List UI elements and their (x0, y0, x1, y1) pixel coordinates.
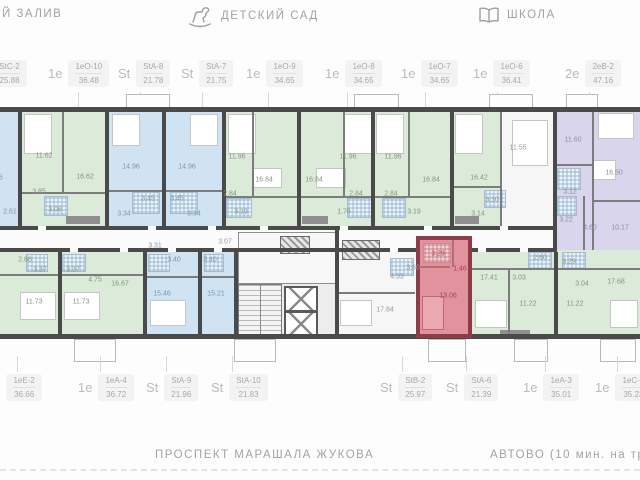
room-area: 15.66 (0, 175, 3, 182)
partition (420, 266, 450, 268)
unit-label-StA-9[interactable]: St StA-921.96 (146, 374, 198, 401)
balcony (600, 339, 636, 362)
room-area: 17.41 (480, 275, 498, 282)
wall (0, 334, 640, 339)
door-gap (260, 226, 268, 230)
gulf-label: Й ЗАЛИВ (2, 8, 62, 20)
partition (252, 110, 254, 196)
room-area: 3.14 (471, 211, 485, 218)
furniture (20, 292, 56, 320)
wall (0, 107, 640, 112)
room-area: 17.68 (607, 279, 625, 286)
room-area: 14.96 (178, 164, 196, 171)
partition (500, 110, 502, 230)
metro-label: АВТОВО (10 мин. на трансп (490, 449, 640, 461)
leader-line (466, 356, 467, 372)
room-area: 11.73 (26, 299, 43, 306)
wall (554, 252, 558, 334)
street-label: ПРОСПЕКТ МАРАШАЛА ЖУКОВА (155, 449, 374, 461)
room-area: 3.08 (48, 207, 62, 214)
room-area: 2.84 (349, 191, 363, 198)
partition (339, 292, 415, 294)
unit-label-1eO-9[interactable]: 1е 1еО-934.65 (246, 60, 303, 87)
room-area: 1.46 (453, 266, 467, 273)
partition (145, 276, 234, 278)
kitchen-counter (302, 216, 328, 224)
room-area: 15.21 (207, 291, 225, 298)
elevator (284, 286, 318, 312)
wall (18, 110, 22, 226)
unit-label-StB-2[interactable]: St StB-225.97 (380, 374, 432, 401)
wall (234, 252, 238, 334)
door-gap (500, 226, 508, 230)
kindergarten-text: ДЕТСКИЙ САД (221, 10, 319, 22)
furniture (150, 300, 186, 326)
room-area: 4.60 (583, 225, 597, 232)
room-area: 3.40 (203, 257, 217, 264)
leader-line (347, 92, 348, 108)
room-area: 14.96 (122, 164, 140, 171)
room-area: 16.42 (470, 175, 488, 182)
partition (555, 164, 593, 166)
room-area: 17.84 (376, 307, 394, 314)
room-area: 2.84 (384, 191, 398, 198)
unit-label-1eC-2[interactable]: 1е 1еС-235.23 (595, 374, 640, 401)
partition (452, 240, 454, 267)
staircase (238, 284, 282, 336)
door-gap (148, 226, 156, 230)
door-gap (120, 248, 128, 252)
room-area: 11.73 (73, 299, 90, 306)
unit-label-StC-2[interactable]: St StC-225.88 (0, 60, 27, 87)
room-area: 3.45 (141, 196, 155, 203)
partition (583, 196, 585, 250)
wall (222, 110, 226, 226)
room-area: 3.12 (563, 189, 577, 196)
unit-label-1eE-2[interactable]: 1е 1еЕ-236.66 (0, 374, 42, 401)
room-area: 11.62 (36, 153, 53, 160)
room-area: 15.46 (153, 291, 171, 298)
room-area: 3.45 (170, 196, 184, 203)
room-area: 3.04 (575, 281, 589, 288)
room-area: 2.60 (533, 255, 547, 262)
unit-label-1eO-10[interactable]: 1е 1еО-1036.48 (48, 60, 109, 87)
room-area: 11.96 (229, 154, 246, 161)
furniture (24, 114, 52, 154)
door-gap (70, 248, 78, 252)
room-area: 1.78 (337, 209, 351, 216)
kitchen-counter (66, 216, 100, 224)
room-area: 3.85 (32, 189, 46, 196)
unit-label-2eB-2[interactable]: 2е 2еВ-247.16 (565, 60, 621, 87)
partition (107, 190, 162, 192)
furniture (190, 114, 218, 146)
leader-line (545, 356, 546, 372)
kindergarten-label: ДЕТСКИЙ САД (186, 4, 319, 28)
unit-label-1eA-4[interactable]: 1е 1еА-436.72 (78, 374, 134, 401)
room-area: 11.22 (567, 301, 584, 308)
balcony (234, 339, 276, 362)
room-area: 2.84 (223, 191, 237, 198)
balcony (514, 339, 548, 362)
room-area: 16.84 (255, 177, 273, 184)
furniture (422, 296, 444, 330)
wall (105, 110, 109, 226)
wall (450, 110, 454, 226)
leader-line (17, 356, 18, 372)
leader-line (100, 356, 101, 372)
bathroom-tile (557, 196, 577, 216)
road-dashed-line (0, 469, 640, 471)
room-area: 2.61 (3, 209, 17, 216)
unit-label-StA-8[interactable]: St StA-821.78 (118, 60, 170, 87)
furniture (344, 114, 372, 154)
furniture (475, 300, 507, 328)
partition (556, 268, 640, 270)
leader-line (232, 356, 233, 372)
partition (166, 190, 222, 192)
room-area: 3.19 (407, 209, 421, 216)
wall (143, 252, 147, 334)
street-text: ПРОСПЕКТ МАРАШАЛА ЖУКОВА (155, 449, 374, 461)
door-gap (38, 226, 46, 230)
wall (553, 110, 557, 252)
room-area: 16.67 (111, 281, 129, 288)
partition (0, 274, 143, 276)
room-area: 16.84 (422, 177, 440, 184)
partition (594, 200, 640, 202)
partition (452, 186, 502, 188)
wall (162, 110, 166, 226)
furniture (598, 113, 634, 139)
furniture (455, 114, 483, 154)
room-area: 16.84 (305, 177, 323, 184)
leader-line (166, 356, 167, 372)
room-area: 3.07 (218, 239, 232, 246)
door-gap (390, 248, 398, 252)
furniture (610, 300, 638, 328)
room-area: 11.60 (565, 137, 582, 144)
wall (371, 110, 375, 226)
leader-line (78, 92, 79, 108)
furniture (64, 292, 100, 320)
leader-line (425, 92, 426, 108)
room-area: 3.19 (234, 209, 248, 216)
room-area: 3.37 (66, 267, 80, 274)
room-area: 11.96 (340, 154, 357, 161)
door-gap (424, 226, 432, 230)
book-icon (478, 6, 500, 24)
wall (297, 110, 301, 226)
unit-label-1eA-3[interactable]: 1е 1еА-335.01 (523, 374, 579, 401)
partition (470, 268, 556, 270)
bathroom-tile (382, 198, 406, 218)
floor-plan-screen: Й ЗАЛИВ ДЕТСКИЙ САД ШКОЛА St StC-225.88 … (0, 0, 640, 480)
unit-label-StA-6[interactable]: St StA-621.39 (446, 374, 498, 401)
room-area: 10.17 (611, 225, 629, 232)
leader-line (268, 92, 269, 108)
room-area: 13.06 (439, 293, 457, 300)
bathroom-tile (557, 168, 581, 190)
leader-line (617, 356, 618, 372)
unit-label-1eO-7[interactable]: 1е 1еО-734.65 (401, 60, 458, 87)
room-area: 3.34 (117, 211, 131, 218)
room-area: 4.33 (390, 274, 404, 281)
room-area: 4.75 (88, 277, 102, 284)
room-area: 11.22 (520, 301, 537, 308)
room-area: 3.22 (559, 217, 573, 224)
room-area: 16.62 (76, 174, 94, 181)
door-gap (340, 226, 348, 230)
door-gap (520, 248, 528, 252)
leader-line (202, 92, 203, 108)
room-area: 16.50 (605, 170, 623, 177)
furniture (376, 114, 404, 154)
gulf-text: Й ЗАЛИВ (2, 8, 62, 20)
door-gap (208, 226, 216, 230)
unit-label-1eO-8[interactable]: 1е 1еО-834.65 (325, 60, 382, 87)
wall (335, 230, 339, 334)
rocking-horse-icon (186, 4, 214, 28)
wall (0, 226, 557, 230)
wall (198, 252, 202, 334)
door-gap (214, 248, 222, 252)
unit-label-StA-10[interactable]: St StA-1021.83 (211, 374, 268, 401)
balcony (74, 339, 116, 362)
balcony (428, 339, 466, 362)
unit-label-StA-7[interactable]: St StA-721.75 (181, 60, 233, 87)
metro-text: АВТОВО (10 мин. на трансп (490, 449, 640, 461)
door-gap (168, 248, 176, 252)
room-area: 2.66 (18, 257, 32, 264)
school-label: ШКОЛА (478, 6, 556, 24)
partition (408, 110, 410, 196)
door-gap (478, 248, 486, 252)
room-area: 3.80 (406, 265, 420, 272)
furniture (512, 120, 548, 166)
furniture (340, 300, 372, 326)
room-area: 3.10 (485, 197, 499, 204)
wall (58, 252, 62, 334)
room-area: 3.29 (562, 259, 576, 266)
room-area: 3.29 (431, 251, 445, 258)
partition (508, 268, 510, 338)
partition (62, 110, 64, 192)
school-text: ШКОЛА (507, 9, 556, 21)
room-area: 11.96 (385, 154, 402, 161)
room-area: 3.03 (512, 275, 526, 282)
room-area: 3.37 (33, 267, 47, 274)
room-area: 3.34 (187, 211, 201, 218)
room-area: 3.40 (167, 257, 181, 264)
unit-label-1eO-6[interactable]: 1е 1еО-636.41 (473, 60, 530, 87)
leader-line (402, 356, 403, 372)
room-area: 11.55 (510, 145, 527, 152)
furniture (112, 114, 140, 146)
room-area: 3.31 (148, 243, 162, 250)
wall (0, 248, 417, 252)
